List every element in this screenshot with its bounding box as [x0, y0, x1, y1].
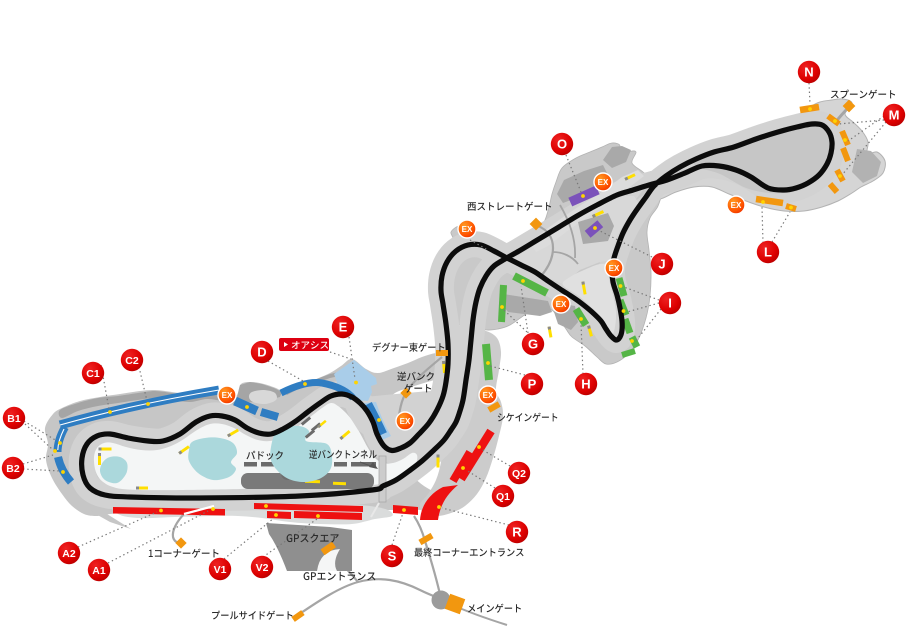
- svg-text:O: O: [557, 137, 567, 152]
- svg-text:B2: B2: [6, 463, 20, 475]
- svg-text:V1: V1: [214, 564, 227, 576]
- svg-text:EX: EX: [222, 391, 233, 400]
- svg-text:Q2: Q2: [512, 468, 526, 480]
- svg-text:A1: A1: [92, 565, 106, 577]
- svg-text:EX: EX: [483, 391, 494, 400]
- svg-text:A2: A2: [62, 548, 76, 560]
- svg-text:S: S: [388, 549, 397, 564]
- svg-text:R: R: [512, 525, 522, 540]
- svg-text:L: L: [764, 245, 772, 260]
- svg-text:EX: EX: [609, 264, 620, 273]
- svg-text:P: P: [528, 377, 537, 392]
- svg-text:E: E: [339, 320, 348, 335]
- svg-text:Q1: Q1: [496, 491, 510, 503]
- svg-text:EX: EX: [400, 417, 411, 426]
- svg-text:C1: C1: [86, 368, 100, 380]
- svg-text:B1: B1: [7, 413, 21, 425]
- svg-text:D: D: [257, 345, 266, 360]
- svg-text:EX: EX: [556, 300, 567, 309]
- svg-text:J: J: [658, 257, 665, 272]
- svg-text:C2: C2: [125, 355, 139, 367]
- svg-text:I: I: [668, 296, 672, 311]
- svg-text:V2: V2: [256, 562, 269, 574]
- svg-text:N: N: [804, 65, 813, 80]
- svg-text:EX: EX: [731, 201, 742, 210]
- svg-text:EX: EX: [462, 225, 473, 234]
- svg-text:M: M: [889, 108, 900, 123]
- svg-text:H: H: [581, 377, 590, 392]
- svg-text:EX: EX: [598, 178, 609, 187]
- svg-text:G: G: [528, 337, 538, 352]
